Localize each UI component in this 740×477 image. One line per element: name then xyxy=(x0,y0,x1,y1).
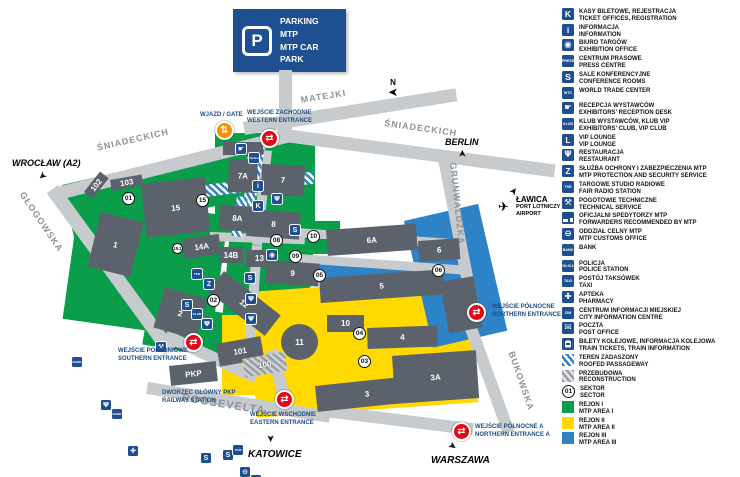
stripe-gray-swatch xyxy=(562,370,574,382)
building-label: 3A xyxy=(430,372,441,382)
direction-label-katowice: KATOWICE xyxy=(248,449,302,460)
legend-item-bilety-kolejowe-informacja-kolejowa: BILETY KOLEJOWE, INFORMACJA KOLEJOWATRAI… xyxy=(562,338,740,353)
policja-icon: POLICJA xyxy=(562,260,574,272)
sector-06: 06 xyxy=(432,264,445,277)
legend-item-text: APTEKAPHARMACY xyxy=(579,291,614,306)
stripe-blue-swatch xyxy=(562,354,574,366)
reception-icon: ☛ xyxy=(562,102,574,114)
entrance-label-line: WEJŚCIE PÓŁNOCNE xyxy=(492,304,561,312)
building-label: 9 xyxy=(290,269,295,278)
entrance-label-line: WEJŚCIE ZACHODNIE xyxy=(247,110,312,118)
legend-text-pl: RESTAURACJA xyxy=(579,150,624,157)
legend-text-pl: SEKTOR xyxy=(580,386,605,393)
building-14b: 14B xyxy=(219,247,243,263)
entrance-marker-icon: ⇄ xyxy=(452,422,471,441)
legend-item-text: OFICJALNI SPEDYTORZY MTPFORWARDERS RECOM… xyxy=(579,212,696,227)
building-8a: 8A xyxy=(219,205,256,232)
legend-item-przebudowa: PRZEBUDOWARECONSTRUCTION xyxy=(562,370,740,385)
legend-text-pl: RECEPCJA WYSTAWCÓW xyxy=(579,103,672,110)
building-6: 6 xyxy=(418,238,460,262)
building-label: 5 xyxy=(379,282,384,291)
area-swatch xyxy=(562,417,574,429)
legend-item-vip-lounge: LVIP LOUNGEVIP LOUNGE xyxy=(562,134,740,149)
legend-text-en: MTP CUSTOMS OFFICE xyxy=(579,236,647,243)
legend-text-en: TICKET OFFICES, REGISTRATION xyxy=(579,16,677,23)
road xyxy=(276,128,555,177)
airplane-icon: ✈ xyxy=(498,200,509,215)
legend-item-text: BIURO TARGÓWEXHIBITION OFFICE xyxy=(579,39,637,54)
entrance-label-wej-cie-zachodnie: WEJŚCIE ZACHODNIEWESTERN ENTRANCE xyxy=(247,110,312,126)
entrance-label-line: NORTHERN ENTRANCE A xyxy=(475,432,550,440)
building-9: 9 xyxy=(265,260,319,287)
bank-icon: BANK xyxy=(562,244,574,256)
direction-label-warszawa: WARSZAWA xyxy=(431,455,490,466)
building-label: 11 xyxy=(295,338,303,347)
k-icon: K xyxy=(253,201,263,211)
klub-icon: KLUB xyxy=(562,118,574,130)
legend-text-en: POST OFFICE xyxy=(579,330,619,337)
wtc-icon: WTC xyxy=(562,87,574,99)
parking-sign: P PARKING MTP MTP CAR PARK xyxy=(233,9,346,72)
legend-text-pl: BIURO TARGÓW xyxy=(579,40,637,47)
legend-text-pl: REJON II xyxy=(579,418,615,425)
legend-item-text: TEREN ZADASZONYROOFED PASSAGEWAY xyxy=(579,354,648,369)
z-icon: Z xyxy=(204,279,214,289)
logo-icon: ◉ xyxy=(267,250,277,260)
legend-item-text: PRZEBUDOWARECONSTRUCTION xyxy=(579,370,636,385)
legend-item-text: CENTRUM PRASOWEPRESS CENTRE xyxy=(579,55,642,70)
entrance-label-wej-cie-po-udniowe: WEJŚCIE POŁUDNIOWESOUTHERN ENTRANCE xyxy=(118,348,188,364)
entrance-marker-icon: ⇄ xyxy=(467,303,486,322)
building-label: 100 xyxy=(257,359,272,370)
legend-item-informacja: iINFORMACJAINFORMATION xyxy=(562,24,740,39)
legend-text-en: INFORMATION xyxy=(579,32,621,39)
s-icon: S xyxy=(290,225,300,235)
street-label-matejki: MATEJKI xyxy=(300,88,347,105)
restaurant-icon: Ψ xyxy=(562,149,574,161)
legend-text-pl: POCZTA xyxy=(579,323,619,330)
legend-item-teren-zadaszony: TEREN ZADASZONYROOFED PASSAGEWAY xyxy=(562,354,740,369)
legend-item-text: REJON IMTP AREA I xyxy=(579,401,613,416)
legend-item-text: RECEPCJA WYSTAWCÓWEXHIBITORS' RECEPTION … xyxy=(579,102,672,117)
legend-item-poczta: ✉POCZTAPOST OFFICE xyxy=(562,322,740,337)
s-icon: S xyxy=(201,453,211,463)
legend-text-pl: CENTRUM PRASOWE xyxy=(579,56,642,63)
legend-item-text: REJON IIMTP AREA II xyxy=(579,417,615,432)
legend-text-pl: REJON III xyxy=(579,433,616,440)
sector-05: 05 xyxy=(313,269,326,282)
legend-text-en: PRESS CENTRE xyxy=(579,63,642,70)
s-icon: S xyxy=(245,273,255,283)
sector-09: 09 xyxy=(289,250,302,263)
legend-text-pl: KASY BILETOWE, REJESTRACJA xyxy=(579,9,677,16)
sector-10: 10 xyxy=(307,230,320,243)
legend-text-pl: TEREN ZADASZONY xyxy=(579,355,648,362)
restaurant-icon: Ψ xyxy=(272,194,282,204)
legend-item-text: SALE KONFERENCYJNECONFERENCE ROOMS xyxy=(579,71,650,86)
gate-marker-icon: ⇅ xyxy=(215,121,234,140)
policja-icon: POLICJA xyxy=(249,153,259,163)
tsr-icon: TSR xyxy=(562,181,574,193)
building-label: 101 xyxy=(233,346,248,357)
building-label: 3 xyxy=(364,389,369,398)
legend-item-sale-konferencyjne: SSALE KONFERENCYJNECONFERENCE ROOMS xyxy=(562,71,740,86)
legend-item-text: REJON IIIMTP AREA III xyxy=(579,432,616,447)
legend-item-rejon-i: REJON IMTP AREA I xyxy=(562,401,740,416)
direction-arrow-icon: ➤ xyxy=(35,169,48,183)
entrance-label-line: WEJŚCIE WSCHODNIE xyxy=(250,412,316,420)
legend: KKASY BILETOWE, REJESTRACJATICKET OFFICE… xyxy=(562,8,740,470)
cim-icon: CIM xyxy=(562,307,574,319)
entrance-label-dworzec-g-wny-pkp: DWORZEC GŁÓWNY PKPRAILWAY STATION xyxy=(162,390,236,406)
entrance-label-line: WEJŚCIE PÓŁNOCNE A xyxy=(475,424,550,432)
legend-text-en: ROOFED PASSAGEWAY xyxy=(579,362,648,369)
legend-item-text: VIP LOUNGEVIP LOUNGE xyxy=(579,134,616,149)
parking-sign-line1: PARKING MTP xyxy=(280,15,337,41)
i-icon: i xyxy=(253,181,263,191)
street-label-niadeckich: ŚNIADECKICH xyxy=(384,118,458,138)
entrance-label-line: DWORZEC GŁÓWNY PKP xyxy=(162,390,236,398)
building-pkp: PKP xyxy=(169,361,218,386)
map-canvas: P PARKING MTP MTP CAR PARK N ➤ KKASY BIL… xyxy=(0,0,740,477)
truck-icon xyxy=(562,212,574,224)
entrance-marker-icon: ⇄ xyxy=(260,129,279,148)
legend-item-pogotowie-techniczne: ⚒POGOTOWIE TECHNICZNETECHNICAL SERVICE xyxy=(562,197,740,212)
legend-text-pl: BILETY KOLEJOWE, INFORMACJA KOLEJOWA xyxy=(579,339,715,346)
sector-08: 08 xyxy=(270,234,283,247)
building-label: 6 xyxy=(437,245,442,254)
entrance-label-wej-cie-p-nocne: WEJŚCIE PÓŁNOCNENORTHERN ENTRANCE xyxy=(492,304,561,320)
building-label: 7 xyxy=(281,176,286,185)
legend-item-apteka: ✚APTEKAPHARMACY xyxy=(562,291,740,306)
restaurant-icon: Ψ xyxy=(246,294,256,304)
legend-text-en: SECTOR xyxy=(580,393,605,400)
entrance-label-line: EASTERN ENTRANCE xyxy=(250,420,316,428)
legend-text-pl: KLUB WYSTAWCÓW, KLUB VIP xyxy=(579,119,670,126)
legend-text-en: TRAIN TICKETS, TRAIN INFORMATION xyxy=(579,346,715,353)
entrance-label-wej-cie-wschodnie: WEJŚCIE WSCHODNIEEASTERN ENTRANCE xyxy=(250,412,316,428)
building-15: 15 xyxy=(141,177,210,237)
legend-item-rejon-iii: REJON IIIMTP AREA III xyxy=(562,432,740,447)
entrance-label-line: SOUTHERN ENTRANCE xyxy=(118,356,188,364)
building-label: 13 xyxy=(255,254,264,263)
sector-01: 01 xyxy=(122,192,135,205)
airport-name: ŁAWICA xyxy=(516,195,560,204)
building-label: 7A xyxy=(238,171,249,180)
legend-item-policja: POLICJAPOLICJAPOLICE STATION xyxy=(562,260,740,275)
legend-item-centrum-prasowe: PRESSCENTRUM PRASOWEPRESS CENTRE xyxy=(562,55,740,70)
legend-text-en: MTP PROTECTION AND SECURITY SERVICE xyxy=(579,173,707,180)
legend-item-kasy-biletowe-rejestracja: KKASY BILETOWE, REJESTRACJATICKET OFFICE… xyxy=(562,8,740,23)
building-label: 14B xyxy=(224,251,239,260)
legend-item-text: RESTAURACJARESTAURANT xyxy=(579,149,624,164)
wrench-icon: ⚒ xyxy=(562,197,574,209)
legend-text-pl: VIP LOUNGE xyxy=(579,135,616,142)
legend-text-pl: PRZEBUDOWA xyxy=(579,371,636,378)
legend-item-s-u-ba-ochrony-i-zabezpieczenia-mtp: ZSŁUŻBA OCHRONY I ZABEZPIECZENIA MTPMTP … xyxy=(562,165,740,180)
direction-label-berlin: BERLIN xyxy=(445,137,479,147)
s-icon: S xyxy=(562,71,574,83)
legend-item-text: WORLD TRADE CENTER xyxy=(579,87,650,95)
legend-text-pl: TARGOWE STUDIO RADIOWE xyxy=(579,182,665,189)
legend-item-world-trade-center: WTCWORLD TRADE CENTER xyxy=(562,87,740,99)
legend-text-pl: REJON I xyxy=(579,402,613,409)
legend-item-centrum-informacji-miejskiej: CIMCENTRUM INFORMACJI MIEJSKIEJCITY INFO… xyxy=(562,307,740,322)
building-label: 8 xyxy=(271,220,276,229)
area-swatch xyxy=(562,432,574,444)
building-label: 1 xyxy=(112,240,118,250)
entrance-label-line: RAILWAY STATION xyxy=(162,398,236,406)
entrance-label-wjazd-gate: WJAZD / GATE xyxy=(200,112,243,120)
area-swatch xyxy=(562,401,574,413)
s-icon: S xyxy=(182,300,192,310)
legend-item-text: SŁUŻBA OCHRONY I ZABEZPIECZENIA MTPMTP P… xyxy=(579,165,707,180)
pharmacy-icon: ✚ xyxy=(128,446,138,456)
legend-item-bank: BANKBANK xyxy=(562,244,740,256)
sector-03: 03 xyxy=(358,355,371,368)
z-icon: Z xyxy=(562,165,574,177)
building-label: PKP xyxy=(185,368,202,379)
legend-item-recepcja-wystawc-w: ☛RECEPCJA WYSTAWCÓWEXHIBITORS' RECEPTION… xyxy=(562,102,740,117)
legend-item-targowe-studio-radiowe: TSRTARGOWE STUDIO RADIOWEFAIR RADIO STAT… xyxy=(562,181,740,196)
legend-item-sektor: 01SEKTORSECTOR xyxy=(562,385,740,400)
sector-04: 04 xyxy=(353,327,366,340)
legend-item-text: KLUB WYSTAWCÓW, KLUB VIPEXHIBITORS' CLUB… xyxy=(579,118,670,133)
sector-15-1: 15.1 xyxy=(172,243,183,254)
s-icon: S xyxy=(223,450,233,460)
legend-text-pl: BANK xyxy=(579,245,596,252)
airport-sub-en: AIRPORT xyxy=(516,211,560,218)
logo-icon: ◉ xyxy=(562,39,574,51)
legend-text-pl: SALE KONFERENCYJNE xyxy=(579,72,650,79)
building-label: 15 xyxy=(171,203,181,213)
sector-02: 02 xyxy=(207,294,220,307)
compass: N ➤ xyxy=(388,78,398,97)
i-icon: i xyxy=(562,24,574,36)
legend-text-pl: POGOTOWIE TECHNICZNE xyxy=(579,198,657,205)
legend-item-text: KASY BILETOWE, REJESTRACJATICKET OFFICES… xyxy=(579,8,677,23)
entrance-label-line: WJAZD / GATE xyxy=(200,112,243,120)
tsr-icon: TSR xyxy=(192,269,202,279)
legend-item-text: TARGOWE STUDIO RADIOWEFAIR RADIO STATION xyxy=(579,181,665,196)
legend-text-en: RECONSTRUCTION xyxy=(579,377,636,384)
taxi-icon: TAXI xyxy=(562,275,574,287)
entrance-label-wej-cie-p-nocne-a: WEJŚCIE PÓŁNOCNE ANORTHERN ENTRANCE A xyxy=(475,424,550,440)
building-label: 8A xyxy=(232,214,243,224)
legend-text-en: VIP LOUNGE xyxy=(579,142,616,149)
street-label-bukowska: BUKOWSKA xyxy=(507,350,537,412)
legend-text-en: TECHNICAL SERVICE xyxy=(579,205,657,212)
customs-icon: ⊖ xyxy=(562,228,574,240)
street-label-niadeckich: ŚNIADECKICH xyxy=(96,126,170,152)
post-icon: ✉ xyxy=(562,322,574,334)
legend-text-pl: WORLD TRADE CENTER xyxy=(579,88,650,95)
reception-icon: ☛ xyxy=(236,144,246,154)
legend-item-rejon-ii: REJON IIMTP AREA II xyxy=(562,417,740,432)
press-icon: PRESS xyxy=(562,55,574,67)
customs-icon: ⊖ xyxy=(240,467,250,477)
restaurant-icon: Ψ xyxy=(101,400,111,410)
legend-item-text: POGOTOWIE TECHNICZNETECHNICAL SERVICE xyxy=(579,197,657,212)
legend-item-text: BILETY KOLEJOWE, INFORMACJA KOLEJOWATRAI… xyxy=(579,338,715,353)
legend-item-text: POLICJAPOLICE STATION xyxy=(579,260,628,275)
parking-icon: P xyxy=(242,26,272,56)
k-icon: K xyxy=(562,8,574,20)
legend-text-en: MTP AREA II xyxy=(579,425,615,432)
bank-icon: BANK xyxy=(72,357,82,367)
direction-arrow-icon: ➤ xyxy=(265,434,276,442)
legend-text-pl: POSTÓJ TAKSÓWEK xyxy=(579,276,640,283)
airport-label: ŁAWICAPORT LOTNICZYAIRPORT xyxy=(516,195,560,217)
legend-item-text: SEKTORSECTOR xyxy=(580,385,605,400)
legend-item-oficjalni-spedytorzy-mtp: OFICJALNI SPEDYTORZY MTPFORWARDERS RECOM… xyxy=(562,212,740,227)
building-label: 14A xyxy=(194,241,210,252)
legend-text-en: PHARMACY xyxy=(579,299,614,306)
legend-text-pl: CENTRUM INFORMACJI MIEJSKIEJ xyxy=(579,308,681,315)
klub-icon: KLUB xyxy=(192,309,202,319)
direction-arrow-icon: ➤ xyxy=(446,440,459,454)
legend-text-en: EXHIBITION OFFICE xyxy=(579,47,637,54)
building-label: 6A xyxy=(366,235,377,245)
north-arrow-icon: ➤ xyxy=(388,87,398,97)
pharmacy-icon: ✚ xyxy=(562,291,574,303)
legend-text-pl: OFICJALNI SPEDYTORZY MTP xyxy=(579,213,696,220)
entrance-marker-icon: ⇄ xyxy=(275,390,294,409)
entrance-label-line: WESTERN ENTRANCE xyxy=(247,118,312,126)
legend-text-en: POLICE STATION xyxy=(579,267,628,274)
l-icon: L xyxy=(562,134,574,146)
legend-text-en: EXHIBITORS' CLUB, VIP CLUB xyxy=(579,126,670,133)
airport-sub-pl: PORT LOTNICZY xyxy=(516,204,560,211)
restaurant-icon: Ψ xyxy=(246,314,256,324)
parking-sign-line2: MTP CAR PARK xyxy=(280,41,337,67)
building-7: 7 xyxy=(261,164,305,196)
building-label: 103 xyxy=(119,177,134,188)
legend-item-text: CENTRUM INFORMACJI MIEJSKIEJCITY INFORMA… xyxy=(579,307,681,322)
taxi-icon: TAXI xyxy=(233,445,243,455)
entrance-label-line: NORTHERN ENTRANCE xyxy=(492,312,561,320)
legend-text-en: TAXI xyxy=(579,283,640,290)
legend-item-text: POCZTAPOST OFFICE xyxy=(579,322,619,337)
legend-item-biuro-targ-w: ◉BIURO TARGÓWEXHIBITION OFFICE xyxy=(562,39,740,54)
legend-item-klub-wystawc-w-klub-vip: KLUBKLUB WYSTAWCÓW, KLUB VIPEXHIBITORS' … xyxy=(562,118,740,133)
legend-text-pl: ODDZIAŁ CELNY MTP xyxy=(579,229,647,236)
sector-badge: 01 xyxy=(562,385,575,398)
direction-label-wroc-aw-a2: WROCŁAW (A2) xyxy=(12,158,81,168)
legend-item-restauracja: ΨRESTAURACJARESTAURANT xyxy=(562,149,740,164)
bank-icon: BANK xyxy=(112,409,122,419)
legend-text-en: RESTAURANT xyxy=(579,157,624,164)
parking-sign-text: PARKING MTP MTP CAR PARK xyxy=(280,15,337,66)
building-label: 10 xyxy=(341,319,350,328)
legend-text-pl: POLICJA xyxy=(579,261,628,268)
entrance-label-line: WEJŚCIE POŁUDNIOWE xyxy=(118,348,188,356)
legend-item-post-j-taks-wek: TAXIPOSTÓJ TAKSÓWEKTAXI xyxy=(562,275,740,290)
building-4: 4 xyxy=(367,326,438,349)
legend-text-en: EXHIBITORS' RECEPTION DESK xyxy=(579,110,672,117)
legend-text-en: CITY INFORMATION CENTRE xyxy=(579,315,681,322)
legend-item-oddzia-celny-mtp: ⊖ODDZIAŁ CELNY MTPMTP CUSTOMS OFFICE xyxy=(562,228,740,243)
legend-item-text: INFORMACJAINFORMATION xyxy=(579,24,621,39)
legend-item-text: BANK xyxy=(579,244,596,252)
legend-item-text: ODDZIAŁ CELNY MTPMTP CUSTOMS OFFICE xyxy=(579,228,647,243)
legend-text-en: MTP AREA III xyxy=(579,440,616,447)
legend-text-pl: SŁUŻBA OCHRONY I ZABEZPIECZENIA MTP xyxy=(579,166,707,173)
building-label: 4 xyxy=(400,333,405,342)
legend-item-text: POSTÓJ TAKSÓWEKTAXI xyxy=(579,275,640,290)
train-icon xyxy=(562,338,574,350)
legend-text-en: FAIR RADIO STATION xyxy=(579,189,665,196)
building-11: 11 xyxy=(281,324,318,360)
restaurant-icon: Ψ xyxy=(202,319,212,329)
legend-text-en: MTP AREA I xyxy=(579,409,613,416)
legend-text-pl: INFORMACJA xyxy=(579,25,621,32)
building-6a: 6A xyxy=(326,224,418,256)
sector-15: 15 xyxy=(196,194,209,207)
legend-text-pl: APTEKA xyxy=(579,292,614,299)
legend-text-en: FORWARDERS RECOMMENDED BY MTP xyxy=(579,220,696,227)
direction-arrow-icon: ➤ xyxy=(458,149,469,157)
legend-text-en: CONFERENCE ROOMS xyxy=(579,79,650,86)
